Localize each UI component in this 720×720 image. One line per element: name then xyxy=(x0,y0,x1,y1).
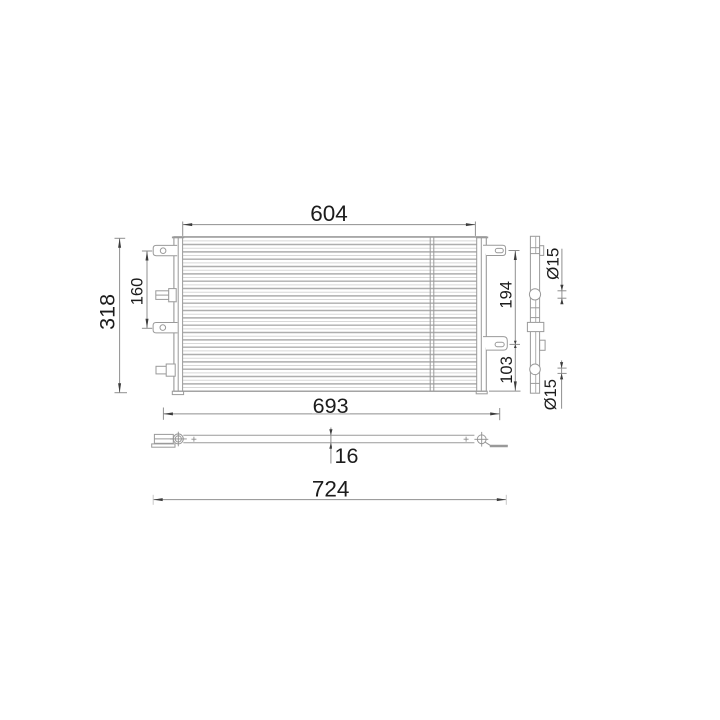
svg-text:103: 103 xyxy=(498,356,516,384)
svg-text:604: 604 xyxy=(310,201,348,226)
svg-text:Ø15: Ø15 xyxy=(544,248,563,280)
svg-text:724: 724 xyxy=(312,477,350,502)
svg-text:160: 160 xyxy=(129,278,147,306)
svg-text:693: 693 xyxy=(313,394,349,418)
svg-text:Ø15: Ø15 xyxy=(542,379,560,410)
svg-text:16: 16 xyxy=(335,444,359,468)
svg-text:194: 194 xyxy=(498,281,516,309)
svg-text:318: 318 xyxy=(95,294,119,330)
